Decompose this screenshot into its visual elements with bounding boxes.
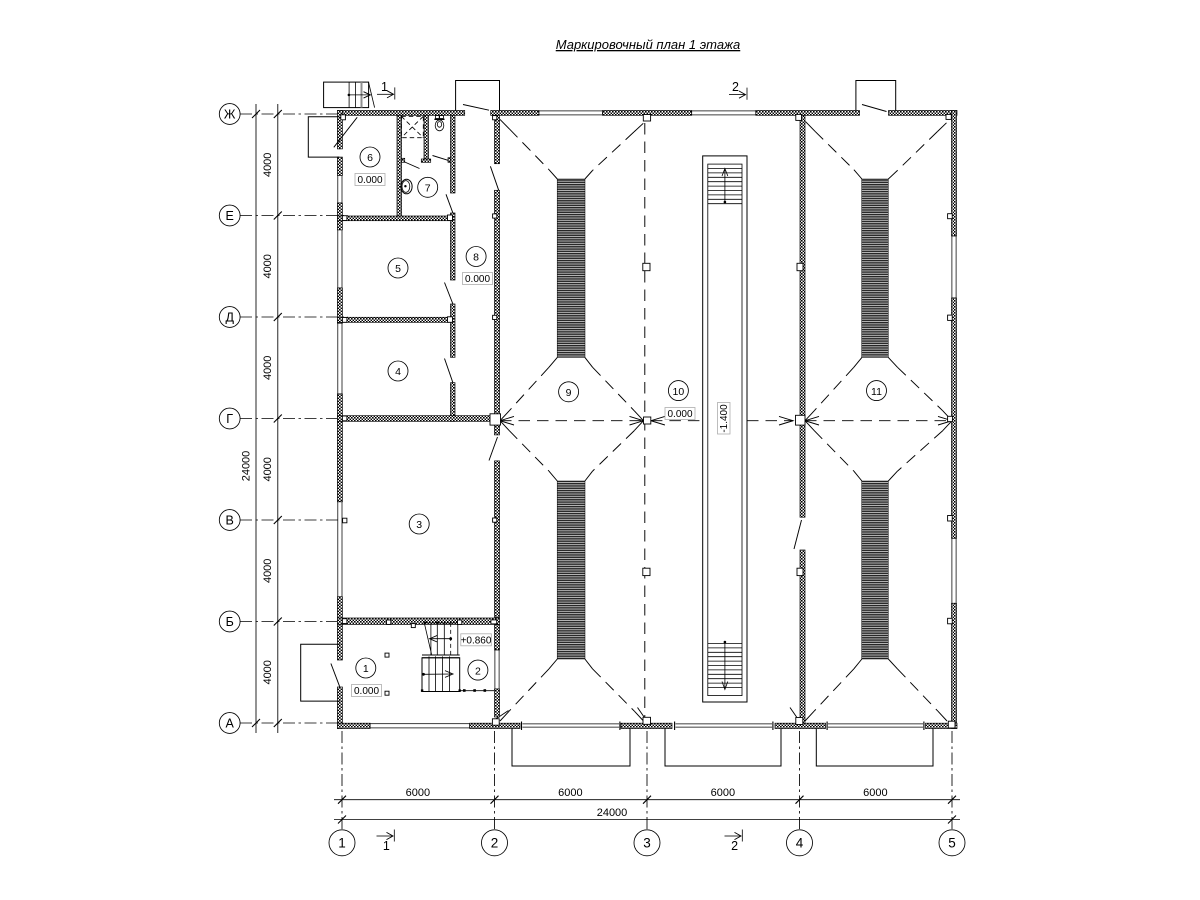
svg-text:Ж: Ж [224, 107, 236, 121]
svg-text:5: 5 [395, 263, 401, 275]
svg-text:2: 2 [731, 839, 738, 853]
svg-text:Б: Б [226, 615, 234, 629]
svg-text:2: 2 [475, 665, 481, 677]
svg-text:2: 2 [491, 836, 499, 851]
svg-text:4000: 4000 [262, 559, 274, 583]
svg-text:0.000: 0.000 [354, 686, 379, 697]
svg-text:4000: 4000 [262, 153, 274, 177]
svg-text:5: 5 [948, 836, 956, 851]
svg-text:24000: 24000 [241, 451, 253, 482]
svg-text:24000: 24000 [597, 807, 628, 819]
svg-text:8: 8 [473, 252, 479, 264]
svg-text:А: А [226, 716, 235, 730]
svg-text:11: 11 [871, 386, 882, 398]
svg-text:6: 6 [367, 152, 373, 164]
svg-text:1: 1 [381, 80, 388, 94]
svg-text:0.000: 0.000 [357, 175, 382, 186]
svg-text:4: 4 [796, 836, 804, 851]
svg-text:7: 7 [425, 183, 431, 195]
svg-text:В: В [226, 513, 234, 527]
svg-text:4000: 4000 [262, 660, 274, 684]
svg-text:9: 9 [566, 387, 572, 399]
svg-text:Маркировочный план 1 этажа: Маркировочный план 1 этажа [556, 37, 741, 52]
svg-text:6000: 6000 [863, 787, 887, 799]
svg-text:6000: 6000 [558, 787, 582, 799]
svg-text:3: 3 [416, 519, 422, 531]
svg-text:4000: 4000 [262, 254, 274, 278]
svg-text:0.000: 0.000 [667, 409, 692, 420]
svg-text:6000: 6000 [406, 787, 430, 799]
svg-text:1: 1 [363, 663, 369, 675]
svg-text:4000: 4000 [262, 356, 274, 380]
svg-text:1: 1 [338, 836, 346, 851]
svg-text:2: 2 [732, 80, 739, 94]
svg-text:6000: 6000 [711, 787, 735, 799]
svg-text:Д: Д [225, 310, 234, 324]
svg-text:0.000: 0.000 [465, 274, 490, 285]
svg-text:10: 10 [673, 386, 685, 398]
svg-text:4: 4 [395, 366, 401, 378]
svg-text:Г: Г [226, 412, 233, 426]
svg-text:1: 1 [383, 839, 390, 853]
svg-text:Е: Е [226, 209, 234, 223]
svg-text:4000: 4000 [262, 457, 274, 481]
svg-text:+0.860: +0.860 [461, 635, 492, 646]
svg-text:3: 3 [643, 836, 651, 851]
svg-text:-1.400: -1.400 [719, 404, 730, 433]
